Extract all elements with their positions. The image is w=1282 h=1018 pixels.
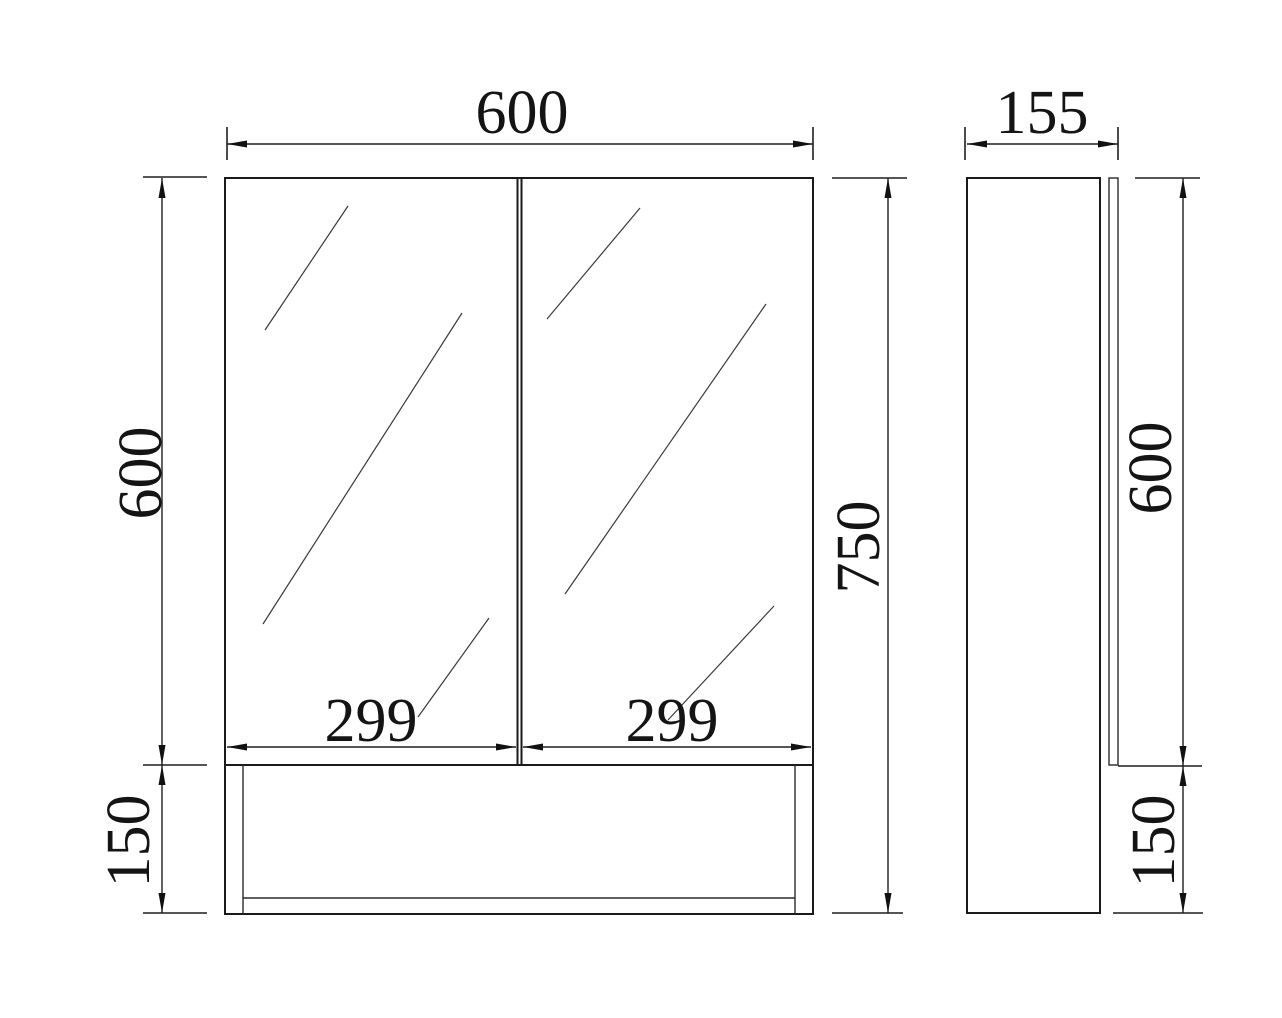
- mirror-cabinet-technical-drawing: 600 155 600 150 750: [0, 0, 1282, 1018]
- dim-side-mirror-height-label: 600: [1117, 422, 1185, 515]
- arrowhead: [159, 893, 166, 913]
- dim-side-depth: 155: [965, 79, 1118, 160]
- hatch-line: [263, 313, 462, 624]
- dim-right-door-width: 299: [523, 687, 811, 755]
- dim-front-mirror-height: 600: [107, 177, 207, 765]
- arrowhead: [967, 141, 987, 148]
- dim-front-shelf-height-label: 150: [95, 795, 163, 888]
- arrowhead: [791, 744, 811, 751]
- shelf-outline: [225, 765, 813, 914]
- side-view: [967, 178, 1118, 913]
- dim-left-door-width: 299: [227, 687, 516, 755]
- arrowhead: [1180, 893, 1187, 913]
- dim-right-door-width-label: 299: [626, 687, 719, 755]
- drawing-canvas: 600 155 600 150 750: [0, 0, 1282, 1018]
- hatch-line: [265, 206, 348, 330]
- arrowhead: [1180, 766, 1187, 786]
- arrowhead: [793, 141, 813, 148]
- arrowhead: [523, 744, 543, 751]
- side-body-outline: [967, 178, 1100, 913]
- dim-side-mirror-height: 600: [1117, 178, 1202, 766]
- dim-front-overall-width: 600: [227, 79, 813, 160]
- dim-side-shelf-height: 150: [1113, 766, 1203, 913]
- hatch-line: [565, 304, 766, 594]
- arrowhead: [1180, 746, 1187, 766]
- right-door-mirror-hatch: [547, 208, 774, 720]
- left-door-mirror-hatch: [263, 206, 489, 717]
- dim-front-mirror-height-label: 600: [107, 427, 175, 520]
- arrowhead: [885, 893, 892, 913]
- arrowhead: [159, 745, 166, 765]
- arrowhead: [159, 178, 166, 198]
- hatch-line: [418, 618, 489, 717]
- arrowhead: [1180, 178, 1187, 198]
- dim-left-door-width-label: 299: [325, 687, 418, 755]
- front-doors-outline: [225, 178, 813, 765]
- dim-front-overall-width-label: 600: [476, 79, 569, 147]
- arrowhead: [1098, 141, 1118, 148]
- dim-front-shelf-height: 150: [95, 765, 207, 913]
- front-view: [225, 178, 813, 914]
- arrowhead: [227, 141, 247, 148]
- arrowhead: [227, 744, 247, 751]
- dim-side-depth-label: 155: [996, 79, 1089, 147]
- front-shelf: [225, 765, 813, 914]
- arrowhead: [885, 178, 892, 198]
- arrowhead: [159, 765, 166, 785]
- dim-front-overall-height-label: 750: [825, 501, 893, 594]
- dim-front-overall-height: 750: [825, 178, 907, 913]
- arrowhead: [496, 744, 516, 751]
- hatch-line: [547, 208, 640, 319]
- dim-side-shelf-height-label: 150: [1120, 795, 1188, 888]
